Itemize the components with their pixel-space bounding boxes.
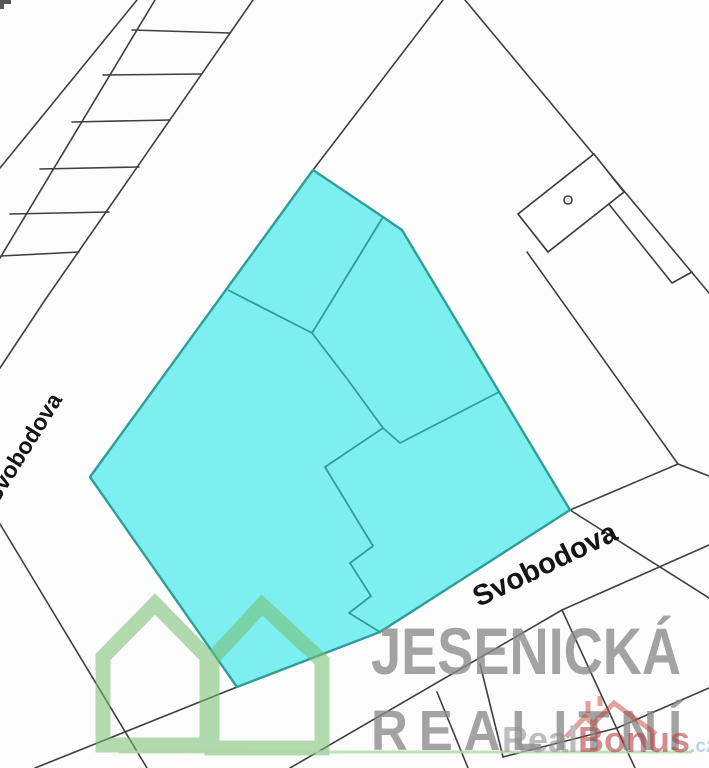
portal-logo-suffix: .cz <box>690 736 709 757</box>
annex-strip-line <box>608 203 692 283</box>
boundary-right-junction <box>570 464 709 510</box>
boundary-top-centre <box>313 0 443 170</box>
ladder-parcel-dividers <box>1 30 230 256</box>
agency-name-line1: JESENICKÁ <box>371 614 681 688</box>
scan-corner-artifact <box>0 0 11 9</box>
ladder-left-edge <box>0 0 155 258</box>
cadastral-map: Svobodova Svobodova JESENICKÁ REALITNÍ R… <box>0 0 709 768</box>
cadastral-map-screenshot: Svobodova Svobodova JESENICKÁ REALITNÍ R… <box>0 0 709 768</box>
street-label-svobodova-left: Svobodova <box>0 388 67 507</box>
portal-logo-text: RealBonus.cz <box>502 719 709 760</box>
logo-house-left-icon <box>103 604 207 745</box>
portal-logo-part2: Bonus <box>578 719 690 760</box>
boundary-right-parcel <box>527 252 678 464</box>
survey-point-symbol <box>564 196 572 204</box>
road-edge-top-right <box>465 0 709 293</box>
building-footprint <box>518 154 624 252</box>
portal-logo-part1: Real <box>502 719 578 760</box>
